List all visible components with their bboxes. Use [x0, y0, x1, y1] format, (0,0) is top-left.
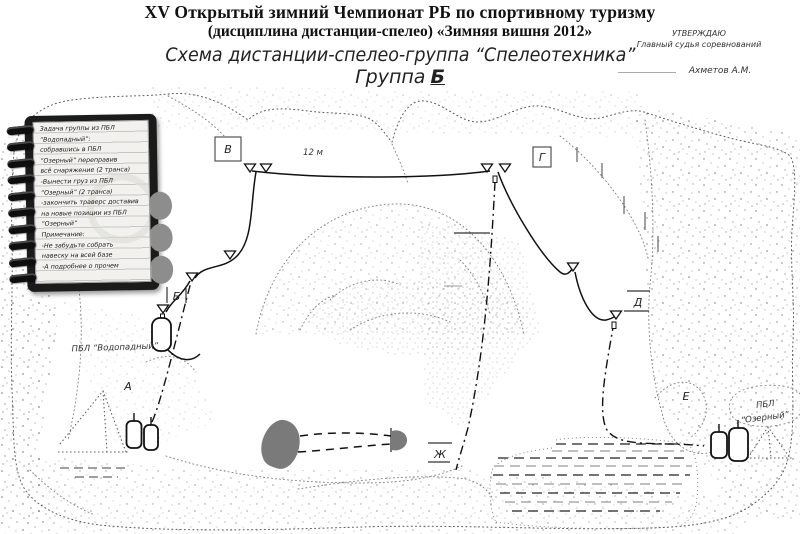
spiral-coil — [7, 158, 35, 169]
title-line1: XV Открытый зимний Чемпионат РБ по спорт… — [0, 2, 800, 22]
task-notebook: Задача группы из ПБЛ “Водопадный”: собра… — [10, 116, 163, 293]
spiral-coil — [8, 191, 36, 202]
checkpoint-e: Е — [683, 390, 690, 403]
spiral-coil — [7, 174, 35, 185]
spiral-coil — [8, 223, 36, 234]
spiral-coil — [6, 125, 34, 136]
spiral-coil — [8, 240, 36, 251]
checkpoint-d: Д — [633, 296, 643, 309]
checkpoint-b: Б — [173, 290, 181, 303]
approval-block: УТВЕРЖДАЮ Главный судья соревнований Ахм… — [604, 28, 794, 77]
checkpoint-zh: Ж — [433, 448, 447, 461]
spiral-coil — [9, 273, 37, 284]
checkpoint-v: В — [224, 143, 232, 156]
notebook-page: Задача группы из ПБЛ “Водопадный”: собра… — [33, 120, 152, 284]
traverse-length-label: 12 м — [303, 148, 324, 158]
spiral-binding — [7, 126, 40, 282]
signature-row: Ахметов А.М. — [604, 66, 794, 77]
approval-word: УТВЕРЖДАЮ — [604, 28, 794, 39]
checkpoint-g: Г — [539, 151, 546, 164]
group-prefix: Группа — [355, 66, 425, 88]
spiral-coil — [8, 207, 36, 218]
notebook-text-line: -А подробнее о прочем — [42, 261, 147, 273]
spiral-coil — [7, 141, 35, 152]
lake-gray-blobs — [261, 420, 407, 469]
checkpoint-a: А — [123, 380, 132, 393]
signature-name: Ахметов А.М. — [689, 66, 751, 76]
approval-role: Главный судья соревнований — [604, 39, 794, 50]
group-letter: Б — [430, 66, 444, 88]
spiral-coil — [9, 256, 37, 267]
signature-line — [618, 71, 676, 73]
